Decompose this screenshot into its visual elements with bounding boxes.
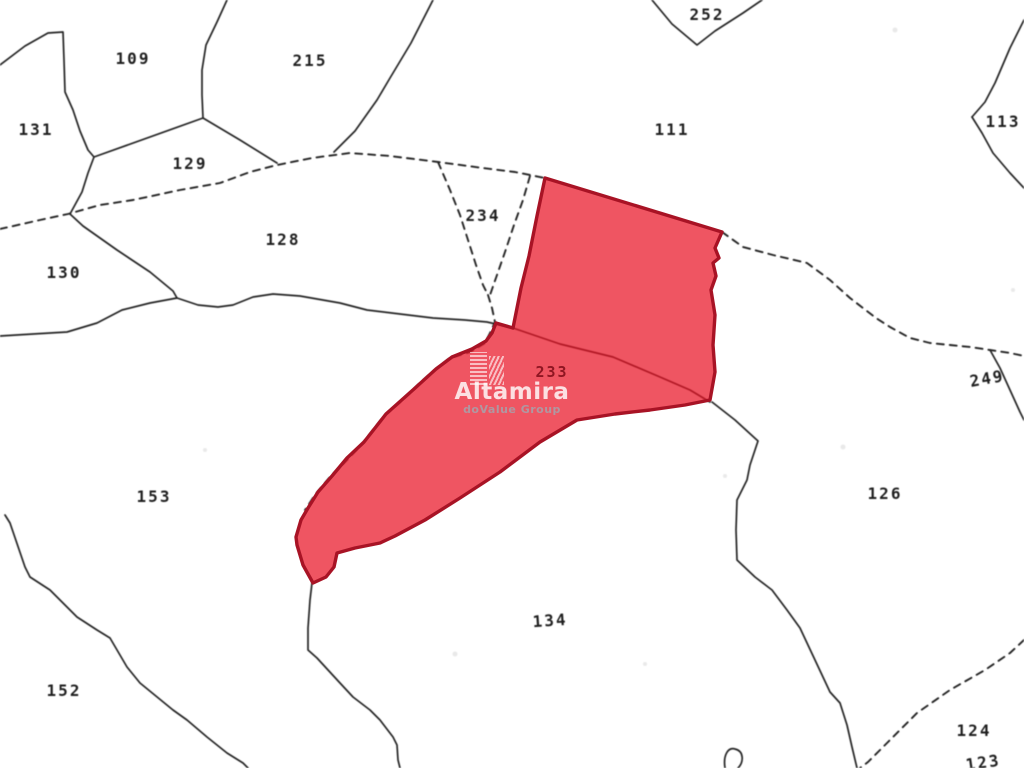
highlighted-parcel-label-233: 233 xyxy=(535,363,568,381)
highlighted-parcel-233[interactable] xyxy=(296,178,722,583)
cadastral-map: 109 215 252 131 129 111 113 128 234 130 … xyxy=(0,0,1024,768)
highlight-layer: 233 xyxy=(0,0,1024,768)
